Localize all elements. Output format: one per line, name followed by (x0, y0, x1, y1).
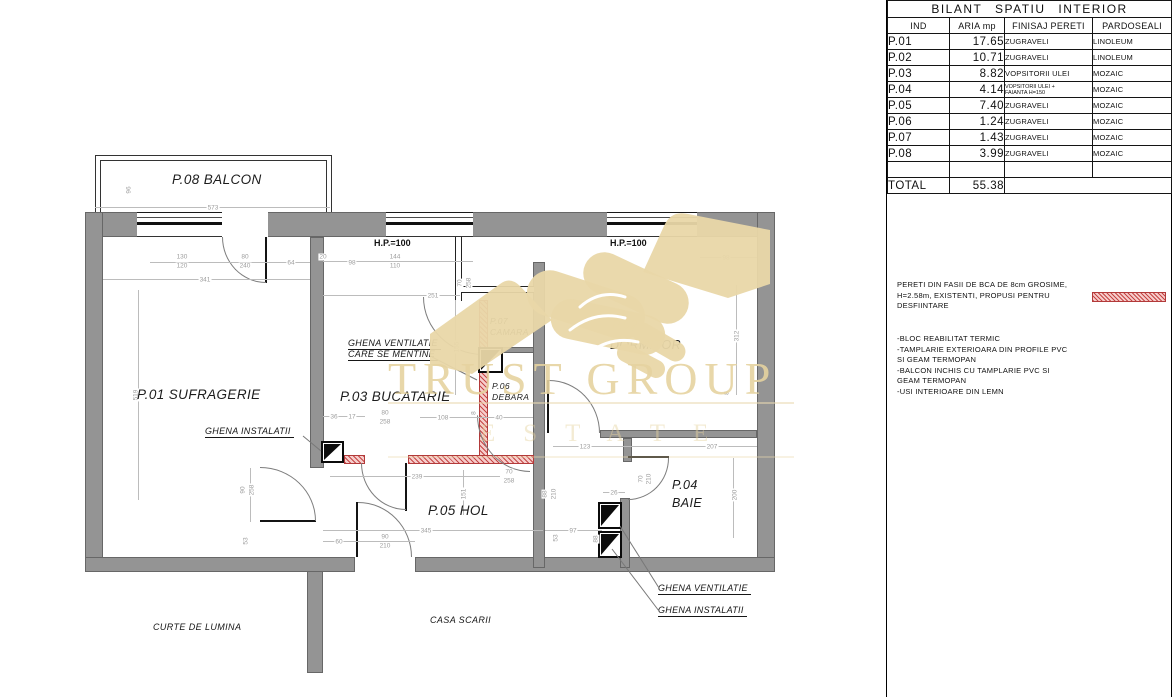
cell-pardoseala: MOZAIC (1093, 114, 1172, 130)
table-row: P.03 8.82 VOPSITORII ULEI MOZAIC (888, 66, 1172, 82)
cell-pardoseala: MOZAIC (1093, 98, 1172, 114)
cell-pardoseala: LINOLEUM (1093, 34, 1172, 50)
demolition-note-line1: PERETI DIN FASII DE BCA DE 8cm GROSIME, (897, 280, 1092, 291)
table-row: P.08 3.99 ZUGRAVELI MOZAIC (888, 146, 1172, 162)
note-line: -BALCON INCHIS CU TAMPLARIE PVC SI (897, 366, 1097, 377)
cell-aria: 8.82 (950, 66, 1005, 82)
note-line: GEAM TERMOPAN (897, 376, 1097, 387)
table-row: P.01 17.65 ZUGRAVELI LINOLEUM (888, 34, 1172, 50)
note-line: -TAMPLARIE EXTERIOARA DIN PROFILE PVC (897, 345, 1097, 356)
general-notes: -BLOC REABILITAT TERMIC -TAMPLARIE EXTER… (897, 334, 1097, 397)
cell-pardoseala: MOZAIC (1093, 66, 1172, 82)
table-row: P.07 1.43 ZUGRAVELI MOZAIC (888, 130, 1172, 146)
cell-ind: P.02 (888, 50, 950, 66)
demolition-note-line2: H=2.58m, EXISTENTI, PROPUSI PENTRU (897, 291, 1092, 302)
area-table: BILANT SPATIU INTERIOR IND ARIA mp FINIS… (887, 0, 1172, 194)
note-line: SI GEAM TERMOPAN (897, 355, 1097, 366)
cell-finisaj: ZUGRAVELI (1005, 50, 1093, 66)
cell-ind: P.01 (888, 34, 950, 50)
cell-ind: P.05 (888, 98, 950, 114)
cell-pardoseala: MOZAIC (1093, 130, 1172, 146)
demolition-note: PERETI DIN FASII DE BCA DE 8cm GROSIME, … (897, 280, 1092, 312)
leader-lines (0, 0, 886, 697)
cell-ind: P.07 (888, 130, 950, 146)
cell-aria: 3.99 (950, 146, 1005, 162)
table-title: BILANT SPATIU INTERIOR (888, 1, 1172, 18)
cell-ind: P.06 (888, 114, 950, 130)
cell-aria: 1.43 (950, 130, 1005, 146)
floor-plan-sheet: 573 96 130 120 80 240 64 341 20 98 144 1… (0, 0, 1173, 697)
cell-total-value: 55.38 (950, 178, 1005, 194)
cell-pardoseala: MOZAIC (1093, 146, 1172, 162)
cell-finisaj: ZUGRAVELI (1005, 98, 1093, 114)
cell-aria: 17.65 (950, 34, 1005, 50)
col-header-finisaj: FINISAJ PERETI (1005, 18, 1093, 34)
note-line: -USI INTERIOARE DIN LEMN (897, 387, 1097, 398)
col-header-pardoseali: PARDOSEALI (1093, 18, 1172, 34)
table-row-total: TOTAL 55.38 (888, 178, 1172, 194)
table-row: P.05 7.40 ZUGRAVELI MOZAIC (888, 98, 1172, 114)
cell-aria: 10.71 (950, 50, 1005, 66)
cell-pardoseala: MOZAIC (1093, 82, 1172, 98)
cell-pardoseala: LINOLEUM (1093, 50, 1172, 66)
col-header-aria: ARIA mp (950, 18, 1005, 34)
cell-aria: 1.24 (950, 114, 1005, 130)
cell-ind: P.08 (888, 146, 950, 162)
cell-finisaj: ZUGRAVELI (1005, 146, 1093, 162)
demolition-note-line3: DESFIINTARE (897, 301, 1092, 312)
cell-ind: P.04 (888, 82, 950, 98)
cell-total-blank (1005, 178, 1172, 194)
cell-finisaj: VOPSITORII ULEI (1005, 66, 1093, 82)
demolition-legend-swatch (1092, 292, 1166, 302)
note-line: -BLOC REABILITAT TERMIC (897, 334, 1097, 345)
cell-finisaj: ZUGRAVELI (1005, 34, 1093, 50)
cell-finisaj: VOPSITORII ULEI + FAIANTA H=150 (1005, 82, 1093, 98)
col-header-ind: IND (888, 18, 950, 34)
table-row: P.06 1.24 ZUGRAVELI MOZAIC (888, 114, 1172, 130)
cell-finisaj: ZUGRAVELI (1005, 114, 1093, 130)
cell-finisaj-line2: FAIANTA H=150 (1005, 90, 1092, 96)
title-block-panel: BILANT SPATIU INTERIOR IND ARIA mp FINIS… (886, 0, 1172, 697)
table-row: P.02 10.71 ZUGRAVELI LINOLEUM (888, 50, 1172, 66)
cell-finisaj: ZUGRAVELI (1005, 130, 1093, 146)
table-row: P.04 4.14 VOPSITORII ULEI + FAIANTA H=15… (888, 82, 1172, 98)
cell-total-label: TOTAL (888, 178, 950, 194)
cell-ind: P.03 (888, 66, 950, 82)
table-row-empty (888, 162, 1172, 178)
cell-aria: 7.40 (950, 98, 1005, 114)
cell-aria: 4.14 (950, 82, 1005, 98)
